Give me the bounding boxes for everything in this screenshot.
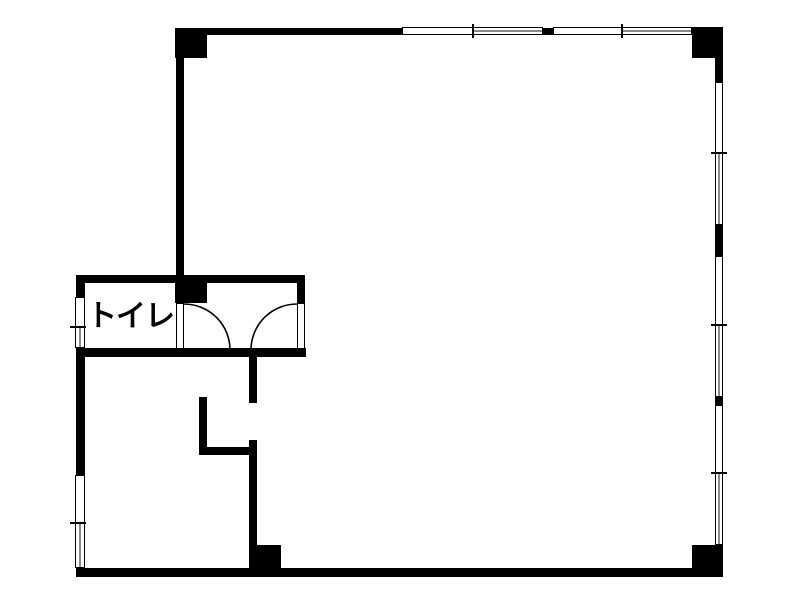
room-label-toilet: トイレ xyxy=(87,300,174,333)
door-swing-arc-right xyxy=(251,304,297,350)
floor-plan-canvas: トイレ xyxy=(0,0,800,600)
door-swing-arc-left xyxy=(184,304,230,350)
